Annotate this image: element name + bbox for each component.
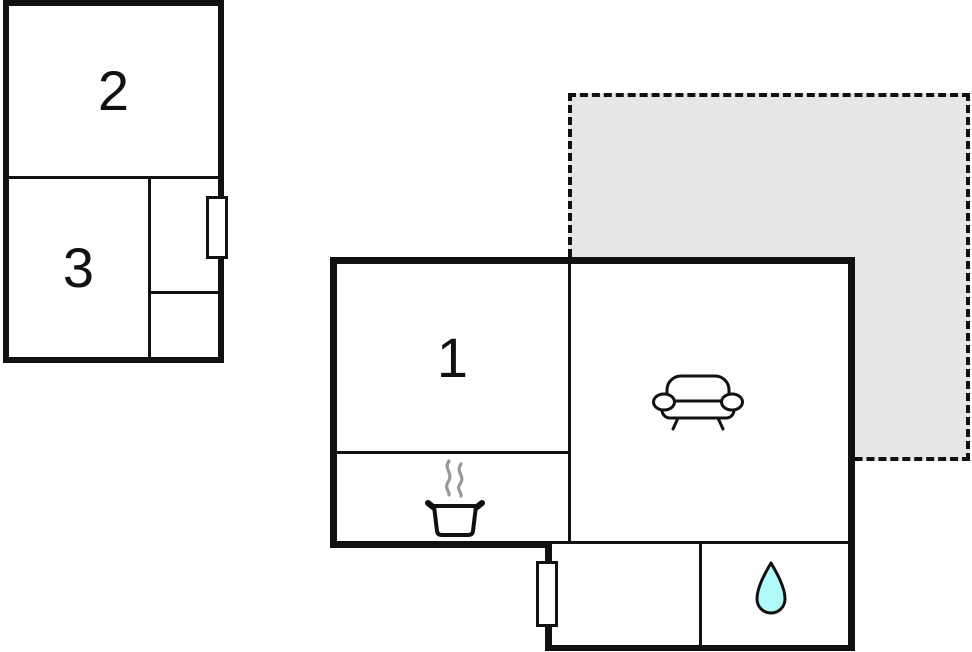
- main-wall-top: [330, 257, 855, 264]
- living-room-area: [652, 374, 744, 437]
- extension-wall-bottom: [545, 645, 855, 651]
- main-building: 1: [0, 0, 972, 652]
- main-wall-bottom-left: [330, 541, 552, 548]
- room-1: 1: [337, 264, 568, 451]
- main-inner-wall-vertical: [568, 264, 571, 541]
- steam-icon: [447, 461, 450, 495]
- cooking-pot-icon: [424, 458, 486, 538]
- pot-body: [434, 506, 476, 535]
- steam-icon: [459, 464, 462, 496]
- extension-window: [536, 561, 558, 627]
- room-1-label: 1: [437, 330, 468, 386]
- extension-inner-wall-vertical: [699, 544, 702, 645]
- main-wall-right: [848, 257, 855, 651]
- bathroom-area: [754, 560, 788, 623]
- kitchen-area: [424, 458, 486, 543]
- kitchen-inner-wall: [337, 451, 568, 454]
- sofa-icon: [652, 374, 744, 432]
- floor-plan: 2 3 1: [0, 0, 972, 652]
- main-wall-left: [330, 257, 337, 548]
- water-drop-icon: [754, 560, 788, 618]
